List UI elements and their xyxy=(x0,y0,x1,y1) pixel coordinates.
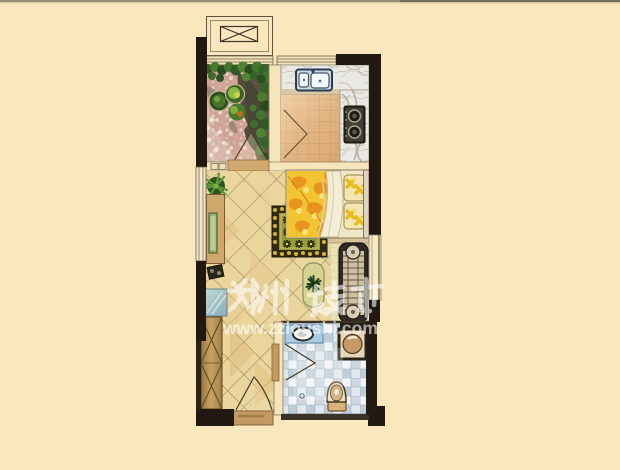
svg-text:www.zzloushi.com: www.zzloushi.com xyxy=(222,318,378,338)
